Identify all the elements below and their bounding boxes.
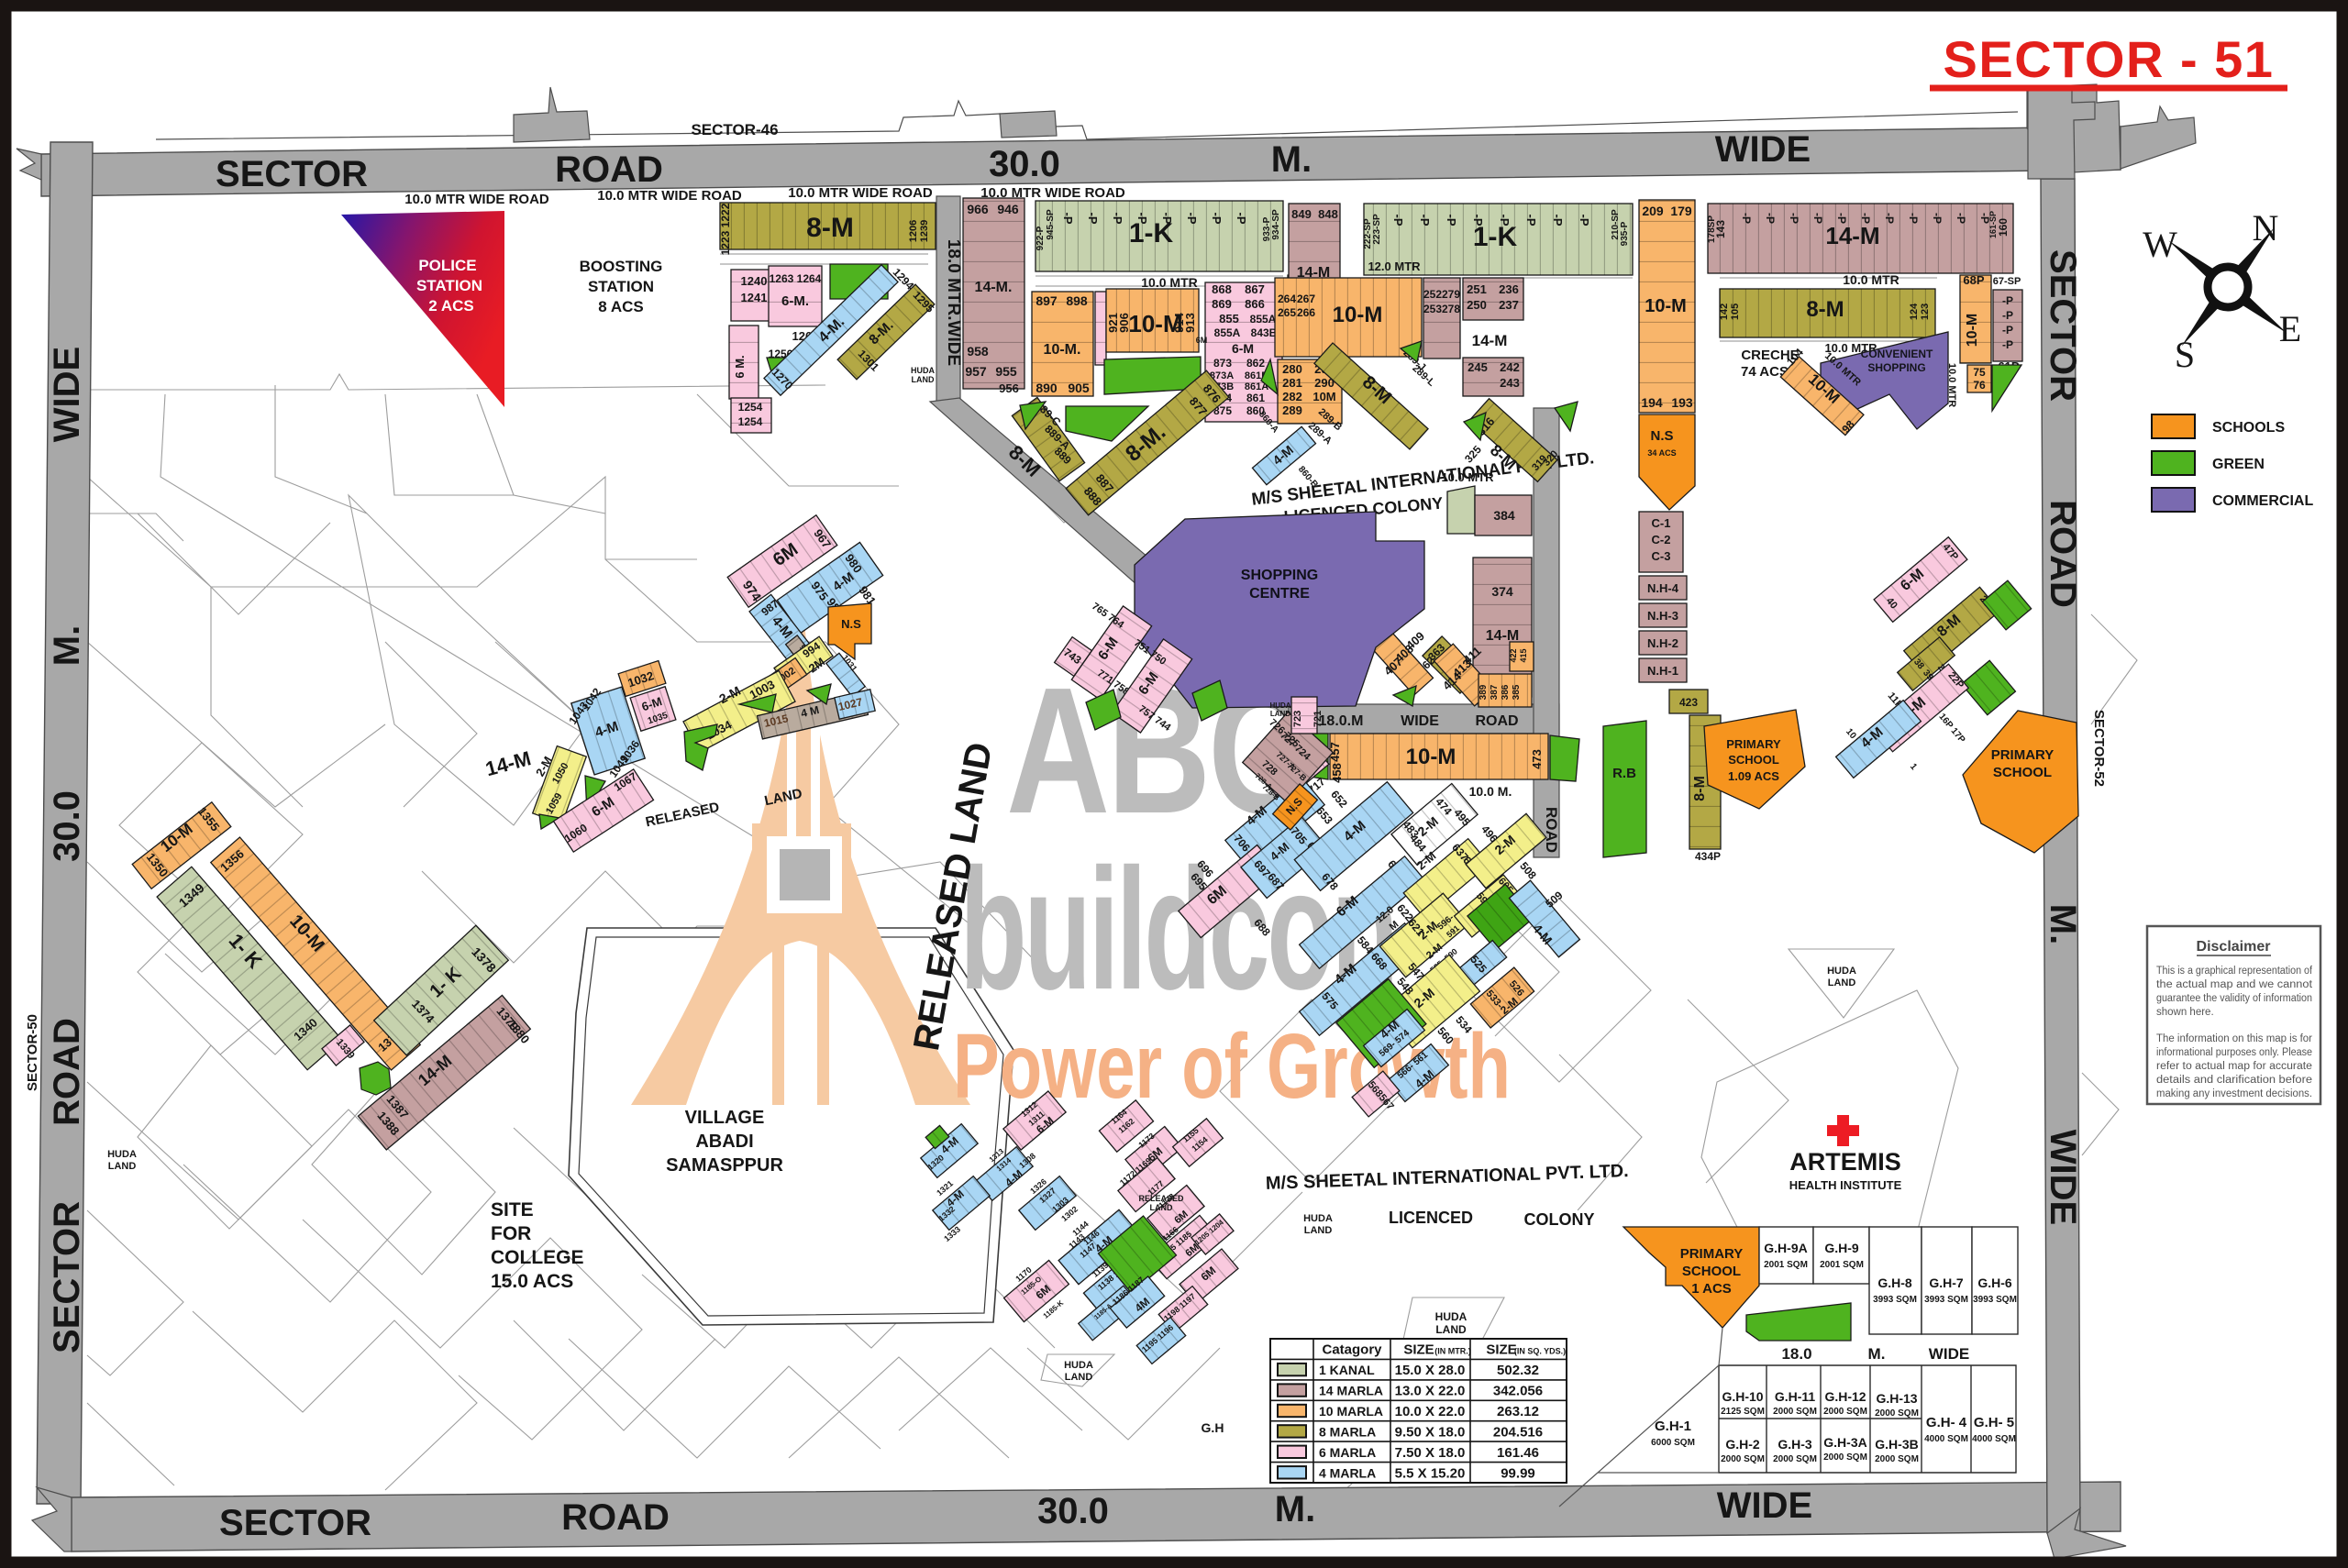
svg-text:1 ACS: 1 ACS bbox=[1691, 1281, 1732, 1297]
svg-text:N.H-1: N.H-1 bbox=[1647, 664, 1678, 678]
svg-text:HUDA: HUDA bbox=[107, 1149, 137, 1160]
svg-text:105: 105 bbox=[1730, 304, 1741, 320]
svg-text:C-1: C-1 bbox=[1652, 516, 1671, 530]
svg-text:242: 242 bbox=[1500, 360, 1520, 374]
svg-text:FOR: FOR bbox=[491, 1223, 531, 1244]
svg-text:99.99: 99.99 bbox=[1501, 1465, 1535, 1481]
svg-text:143: 143 bbox=[1714, 220, 1727, 238]
svg-text:30.0: 30.0 bbox=[989, 144, 1060, 184]
svg-text:M.: M. bbox=[1275, 1489, 1315, 1529]
svg-text:the actual map and we can: the actual map and we cannot bbox=[2156, 979, 2313, 990]
svg-text:6M: 6M bbox=[1196, 336, 1208, 345]
svg-text:342.056: 342.056 bbox=[1493, 1384, 1543, 1399]
svg-text:14-M: 14-M bbox=[1825, 222, 1879, 249]
svg-text:922-P: 922-P bbox=[1036, 226, 1046, 250]
svg-text:2000 SQM: 2000 SQM bbox=[1823, 1407, 1867, 1417]
svg-text:G.H-3A: G.H-3A bbox=[1823, 1435, 1866, 1450]
svg-text:1241: 1241 bbox=[741, 291, 768, 304]
svg-text:855: 855 bbox=[1219, 312, 1239, 326]
svg-text:6 M.: 6 M. bbox=[733, 355, 747, 378]
svg-text:SECTOR: SECTOR bbox=[219, 1503, 371, 1543]
svg-text:HUDA: HUDA bbox=[1827, 966, 1856, 977]
svg-text:G.H-3: G.H-3 bbox=[1778, 1437, 1812, 1452]
svg-text:76: 76 bbox=[1973, 379, 1986, 392]
svg-text:-P: -P bbox=[1811, 213, 1824, 224]
svg-text:-P: -P bbox=[1445, 215, 1458, 226]
svg-text:ROAD: ROAD bbox=[47, 1018, 87, 1126]
svg-text:-P: -P bbox=[1883, 213, 1896, 224]
svg-text:(IN SQ. YDS.): (IN SQ. YDS.) bbox=[1514, 1347, 1566, 1356]
svg-text:SAMASPPUR: SAMASPPUR bbox=[666, 1155, 783, 1176]
svg-text:278: 278 bbox=[1442, 303, 1460, 315]
svg-text:-P: -P bbox=[2002, 294, 2013, 307]
svg-text:243: 243 bbox=[1500, 376, 1520, 390]
svg-text:935-P: 935-P bbox=[1620, 221, 1630, 246]
svg-text:-P: -P bbox=[1418, 215, 1432, 226]
svg-text:-P: -P bbox=[1086, 213, 1100, 225]
svg-text:2125 SQM: 2125 SQM bbox=[1721, 1407, 1765, 1417]
svg-text:958: 958 bbox=[967, 344, 989, 359]
svg-text:CONVENIENT: CONVENIENT bbox=[1861, 348, 1933, 360]
svg-text:WIDE: WIDE bbox=[1717, 1485, 1812, 1526]
svg-text:10-M: 10-M bbox=[1406, 745, 1456, 769]
svg-text:N.S: N.S bbox=[841, 617, 861, 631]
svg-text:6000 SQM: 6000 SQM bbox=[1651, 1438, 1695, 1448]
svg-text:G.H-9: G.H-9 bbox=[1824, 1241, 1859, 1255]
svg-text:193: 193 bbox=[1671, 395, 1693, 410]
svg-text:SCHOOLS: SCHOOLS bbox=[2212, 420, 2285, 436]
svg-text:G.H-3B: G.H-3B bbox=[1875, 1437, 1918, 1452]
svg-text:LAND: LAND bbox=[1270, 710, 1290, 718]
svg-text:1.09 ACS: 1.09 ACS bbox=[1728, 769, 1779, 783]
svg-text:PRIMARY: PRIMARY bbox=[1991, 747, 2054, 763]
svg-text:WIDE: WIDE bbox=[2043, 1130, 2083, 1225]
svg-text:946: 946 bbox=[997, 202, 1019, 216]
svg-text:Disclaimer: Disclaimer bbox=[2197, 939, 2271, 955]
svg-text:COLLEGE: COLLEGE bbox=[491, 1247, 584, 1268]
svg-text:G.H-13: G.H-13 bbox=[1876, 1391, 1917, 1406]
svg-text:M.: M. bbox=[47, 625, 87, 666]
svg-text:67-SP: 67-SP bbox=[1993, 276, 2021, 287]
svg-text:502.32: 502.32 bbox=[1497, 1363, 1539, 1378]
svg-text:M.: M. bbox=[1868, 1345, 1886, 1363]
svg-text:SECTOR-50: SECTOR-50 bbox=[25, 1014, 40, 1091]
svg-text:30.0: 30.0 bbox=[1037, 1491, 1109, 1531]
svg-text:-P: -P bbox=[1135, 213, 1149, 225]
svg-text:374: 374 bbox=[1491, 584, 1513, 599]
svg-text:ARTEMIS: ARTEMIS bbox=[1789, 1148, 1901, 1176]
svg-text:-P: -P bbox=[1061, 213, 1075, 225]
svg-text:HUDA: HUDA bbox=[1435, 1310, 1467, 1323]
svg-text:245: 245 bbox=[1467, 360, 1488, 374]
svg-text:LAND: LAND bbox=[1150, 1203, 1173, 1212]
svg-text:informational purposes only. P: informational purposes only. Please bbox=[2156, 1047, 2312, 1058]
svg-text:-P: -P bbox=[1524, 215, 1538, 226]
svg-text:-P: -P bbox=[2002, 338, 2013, 351]
svg-text:124: 124 bbox=[1909, 303, 1920, 320]
svg-text:LAND: LAND bbox=[1304, 1225, 1333, 1236]
svg-text:862: 862 bbox=[1246, 357, 1265, 370]
svg-text:STATION: STATION bbox=[588, 278, 654, 295]
svg-text:BOOSTING: BOOSTING bbox=[580, 258, 663, 275]
svg-text:14-M.: 14-M. bbox=[975, 280, 1013, 295]
svg-text:5.5 X 15.20: 5.5 X 15.20 bbox=[1395, 1465, 1466, 1481]
svg-text:G.H: G.H bbox=[1202, 1420, 1224, 1435]
svg-text:204.516: 204.516 bbox=[1493, 1424, 1543, 1440]
svg-text:N.H-4: N.H-4 bbox=[1647, 581, 1679, 595]
svg-text:849: 849 bbox=[1291, 207, 1312, 221]
svg-text:251: 251 bbox=[1467, 282, 1487, 296]
svg-text:1263 1264: 1263 1264 bbox=[770, 272, 822, 285]
svg-text:G.H-6: G.H-6 bbox=[1977, 1275, 2012, 1290]
svg-text:SECTOR-52: SECTOR-52 bbox=[2091, 710, 2107, 787]
svg-text:1240: 1240 bbox=[741, 274, 768, 288]
svg-text:LAND: LAND bbox=[1435, 1323, 1467, 1336]
svg-text:SECTOR: SECTOR bbox=[216, 154, 368, 194]
svg-text:HUDA: HUDA bbox=[1303, 1213, 1333, 1224]
svg-text:10.0 M.: 10.0 M. bbox=[1469, 784, 1512, 799]
svg-text:2000 SQM: 2000 SQM bbox=[1875, 1408, 1919, 1419]
svg-text:2001 SQM: 2001 SQM bbox=[1820, 1260, 1864, 1270]
svg-text:ROAD: ROAD bbox=[1475, 713, 1518, 729]
svg-text:HUDA: HUDA bbox=[1064, 1360, 1093, 1371]
svg-text:The information on this map is: The information on this map is for bbox=[2156, 1033, 2312, 1044]
svg-text:POLICE: POLICE bbox=[418, 257, 476, 274]
svg-text:3993 SQM: 3993 SQM bbox=[1873, 1295, 1917, 1305]
svg-text:SCHOOL: SCHOOL bbox=[1993, 765, 2052, 780]
svg-text:-P: -P bbox=[1764, 213, 1777, 224]
svg-text:-P: -P bbox=[1185, 213, 1199, 225]
svg-text:2001 SQM: 2001 SQM bbox=[1764, 1260, 1808, 1270]
svg-text:142: 142 bbox=[1719, 304, 1730, 320]
svg-text:1 KANAL: 1 KANAL bbox=[1319, 1363, 1375, 1377]
svg-text:1254: 1254 bbox=[738, 415, 763, 428]
svg-text:2000 SQM: 2000 SQM bbox=[1823, 1452, 1867, 1463]
svg-text:guarantee the validity of info: guarantee the validity of information bbox=[2156, 993, 2312, 1004]
svg-text:8-M: 8-M bbox=[1692, 776, 1708, 801]
svg-text:-P: -P bbox=[1931, 213, 1944, 224]
svg-text:N.H-2: N.H-2 bbox=[1647, 636, 1678, 650]
svg-text:E: E bbox=[2279, 308, 2301, 349]
svg-text:N.S: N.S bbox=[1650, 428, 1673, 444]
svg-text:-P: -P bbox=[1578, 215, 1591, 226]
svg-text:265: 265 bbox=[1278, 306, 1296, 319]
svg-text:389: 389 bbox=[1479, 684, 1489, 700]
svg-text:723: 723 bbox=[1292, 711, 1303, 727]
svg-text:869: 869 bbox=[1212, 297, 1232, 311]
svg-text:2000 SQM: 2000 SQM bbox=[1875, 1454, 1919, 1464]
svg-text:2000 SQM: 2000 SQM bbox=[1721, 1454, 1765, 1464]
svg-text:10-M: 10-M bbox=[1333, 303, 1383, 327]
svg-text:ROAD: ROAD bbox=[1543, 807, 1560, 853]
svg-text:34 ACS: 34 ACS bbox=[1647, 448, 1676, 458]
svg-text:SECTOR: SECTOR bbox=[2043, 249, 2083, 402]
svg-text:LAND: LAND bbox=[1828, 977, 1856, 988]
svg-text:3993 SQM: 3993 SQM bbox=[1924, 1295, 1968, 1305]
svg-text:10-M: 10-M bbox=[1965, 314, 1980, 347]
svg-text:-P: -P bbox=[1835, 213, 1848, 224]
svg-text:SECTOR - 51: SECTOR - 51 bbox=[1944, 30, 2275, 88]
svg-text:855A: 855A bbox=[1214, 326, 1241, 339]
svg-text:868: 868 bbox=[1212, 282, 1232, 296]
svg-text:10.0 MTR WIDE ROAD: 10.0 MTR WIDE ROAD bbox=[404, 192, 549, 207]
svg-text:18.0: 18.0 bbox=[1781, 1345, 1811, 1363]
svg-text:252: 252 bbox=[1423, 288, 1442, 301]
svg-text:-P: -P bbox=[1551, 215, 1565, 226]
svg-text:237: 237 bbox=[1499, 298, 1519, 312]
svg-text:G.H-7: G.H-7 bbox=[1929, 1275, 1964, 1290]
svg-text:SECTOR-46: SECTOR-46 bbox=[691, 121, 778, 138]
svg-text:873: 873 bbox=[1213, 357, 1232, 370]
svg-text:385: 385 bbox=[1512, 684, 1522, 700]
svg-text:details and clarification b: details and clarification before bbox=[2156, 1075, 2312, 1086]
svg-text:194: 194 bbox=[1641, 395, 1663, 410]
svg-text:10.0 MTR: 10.0 MTR bbox=[1946, 363, 1957, 407]
svg-text:282: 282 bbox=[1282, 390, 1302, 403]
svg-text:13.0 X 22.0: 13.0 X 22.0 bbox=[1395, 1384, 1466, 1399]
svg-text:VILLAGE: VILLAGE bbox=[685, 1108, 765, 1128]
svg-text:8 ACS: 8 ACS bbox=[598, 298, 643, 315]
svg-text:-P: -P bbox=[1235, 213, 1248, 225]
svg-text:281: 281 bbox=[1282, 376, 1302, 390]
svg-text:6 MARLA: 6 MARLA bbox=[1319, 1445, 1376, 1460]
svg-text:PRIMARY: PRIMARY bbox=[1680, 1246, 1744, 1262]
svg-text:209: 209 bbox=[1642, 204, 1664, 218]
svg-text:M.: M. bbox=[1271, 139, 1312, 180]
svg-text:WIDE: WIDE bbox=[1715, 129, 1811, 170]
svg-text:68P: 68P bbox=[1963, 273, 1984, 287]
svg-text:G.H- 4: G.H- 4 bbox=[1926, 1415, 1967, 1430]
svg-text:18.0 MTR.WIDE: 18.0 MTR.WIDE bbox=[944, 239, 963, 366]
svg-text:75: 75 bbox=[1973, 366, 1986, 379]
svg-text:SHOPPING: SHOPPING bbox=[1867, 361, 1925, 374]
svg-text:848: 848 bbox=[1318, 207, 1338, 221]
svg-text:STATION: STATION bbox=[416, 277, 482, 294]
svg-text:434P: 434P bbox=[1695, 850, 1721, 863]
svg-text:1239: 1239 bbox=[919, 220, 930, 242]
svg-text:223-SP: 223-SP bbox=[1372, 214, 1382, 245]
svg-text:890: 890 bbox=[1036, 381, 1058, 395]
svg-text:SITE: SITE bbox=[491, 1199, 534, 1220]
svg-text:-P: -P bbox=[1907, 213, 1920, 224]
svg-text:This is a graphical representa: This is a graphical representation of bbox=[2156, 966, 2313, 977]
svg-text:N.H-3: N.H-3 bbox=[1647, 609, 1678, 623]
svg-text:HUDA: HUDA bbox=[911, 366, 935, 375]
svg-text:1254: 1254 bbox=[738, 401, 763, 414]
svg-text:LAND: LAND bbox=[108, 1161, 137, 1172]
svg-text:905: 905 bbox=[1068, 381, 1090, 395]
svg-text:-P: -P bbox=[1859, 213, 1872, 224]
svg-text:GREEN: GREEN bbox=[2212, 457, 2265, 472]
svg-text:415: 415 bbox=[1519, 648, 1528, 662]
svg-text:-P: -P bbox=[1788, 213, 1800, 224]
svg-text:G.H-12: G.H-12 bbox=[1824, 1389, 1866, 1404]
svg-text:10 MARLA: 10 MARLA bbox=[1319, 1404, 1383, 1419]
svg-text:LICENCED: LICENCED bbox=[1389, 1209, 1473, 1227]
svg-text:10.0 MTR WIDE ROAD: 10.0 MTR WIDE ROAD bbox=[597, 188, 742, 204]
svg-text:1223 1222: 1223 1222 bbox=[719, 203, 732, 255]
svg-text:N: N bbox=[2253, 207, 2279, 248]
svg-text:4000 SQM: 4000 SQM bbox=[1972, 1434, 2016, 1444]
svg-text:458: 458 bbox=[1330, 763, 1344, 783]
svg-text:2 ACS: 2 ACS bbox=[428, 297, 473, 315]
svg-text:866: 866 bbox=[1245, 297, 1265, 311]
svg-text:721: 721 bbox=[1312, 711, 1324, 727]
svg-text:-P: -P bbox=[2002, 324, 2013, 337]
svg-text:HEALTH INSTITUTE: HEALTH INSTITUTE bbox=[1789, 1178, 1902, 1192]
svg-text:SCHOOL: SCHOOL bbox=[1682, 1264, 1741, 1279]
svg-text:4000 SQM: 4000 SQM bbox=[1924, 1434, 1968, 1444]
svg-text:1206: 1206 bbox=[908, 220, 919, 242]
svg-text:253: 253 bbox=[1423, 303, 1442, 315]
svg-text:386: 386 bbox=[1501, 684, 1511, 700]
svg-text:161.46: 161.46 bbox=[1497, 1445, 1539, 1461]
svg-text:C-2: C-2 bbox=[1652, 533, 1671, 547]
svg-text:955: 955 bbox=[995, 364, 1017, 379]
svg-text:1-K: 1-K bbox=[1473, 222, 1518, 252]
svg-text:COLONY: COLONY bbox=[1523, 1210, 1594, 1229]
svg-text:LAND: LAND bbox=[912, 375, 935, 384]
svg-text:15.0 X 28.0: 15.0 X 28.0 bbox=[1395, 1363, 1466, 1378]
svg-text:10.0 MTR: 10.0 MTR bbox=[1843, 272, 1899, 287]
svg-text:160: 160 bbox=[1997, 218, 2010, 237]
svg-text:W: W bbox=[2143, 224, 2177, 265]
svg-text:3993 SQM: 3993 SQM bbox=[1973, 1295, 2017, 1305]
svg-text:-P: -P bbox=[1391, 215, 1405, 226]
svg-text:15.0 ACS: 15.0 ACS bbox=[491, 1271, 573, 1292]
svg-text:-P: -P bbox=[1740, 213, 1753, 224]
svg-text:LAND: LAND bbox=[1065, 1372, 1093, 1383]
svg-text:7.50 X 18.0: 7.50 X 18.0 bbox=[1395, 1445, 1466, 1461]
svg-text:267: 267 bbox=[1297, 293, 1315, 305]
svg-text:S: S bbox=[2175, 334, 2195, 375]
svg-text:SECTOR: SECTOR bbox=[47, 1201, 87, 1353]
svg-text:refer to actual map for a: refer to actual map for accurate bbox=[2156, 1061, 2312, 1072]
svg-text:G.H-1: G.H-1 bbox=[1655, 1419, 1691, 1434]
svg-text:8-M: 8-M bbox=[1806, 297, 1844, 322]
svg-text:SIZE: SIZE bbox=[1403, 1342, 1434, 1358]
svg-text:14-M: 14-M bbox=[1472, 332, 1508, 349]
svg-text:Catagory: Catagory bbox=[1322, 1342, 1382, 1358]
svg-text:913: 913 bbox=[1183, 313, 1197, 333]
svg-text:855A: 855A bbox=[1250, 313, 1277, 326]
svg-text:RELEASED: RELEASED bbox=[1138, 1194, 1184, 1203]
svg-text:179: 179 bbox=[1670, 204, 1692, 218]
svg-text:14 MARLA: 14 MARLA bbox=[1319, 1384, 1383, 1398]
svg-text:CENTRE: CENTRE bbox=[1249, 586, 1310, 602]
svg-text:G.H-2: G.H-2 bbox=[1725, 1437, 1760, 1452]
svg-text:897: 897 bbox=[1036, 293, 1058, 308]
svg-text:123: 123 bbox=[1920, 304, 1931, 320]
svg-text:250: 250 bbox=[1467, 298, 1487, 312]
svg-text:G.H-8: G.H-8 bbox=[1877, 1275, 1912, 1290]
svg-text:473: 473 bbox=[1530, 749, 1544, 769]
svg-text:30.0: 30.0 bbox=[47, 790, 87, 862]
svg-text:280: 280 bbox=[1282, 362, 1302, 376]
svg-text:R.B: R.B bbox=[1612, 766, 1636, 781]
svg-text:10.0 X 22.0: 10.0 X 22.0 bbox=[1395, 1404, 1466, 1419]
svg-text:861: 861 bbox=[1246, 392, 1265, 404]
svg-text:-P: -P bbox=[2002, 309, 2013, 322]
svg-text:ABADI: ABADI bbox=[695, 1132, 753, 1152]
svg-text:ROAD: ROAD bbox=[561, 1497, 670, 1538]
svg-text:966: 966 bbox=[967, 202, 989, 216]
svg-text:6-M: 6-M bbox=[1232, 341, 1254, 356]
svg-text:WIDE: WIDE bbox=[1929, 1345, 1969, 1363]
svg-text:423: 423 bbox=[1679, 696, 1698, 709]
svg-text:SIZE: SIZE bbox=[1486, 1342, 1516, 1358]
svg-text:2000 SQM: 2000 SQM bbox=[1773, 1454, 1817, 1464]
svg-text:9.50 X 18.0: 9.50 X 18.0 bbox=[1395, 1424, 1466, 1440]
svg-text:10M: 10M bbox=[1312, 390, 1335, 403]
svg-text:264: 264 bbox=[1278, 293, 1296, 305]
svg-text:WIDE: WIDE bbox=[47, 347, 87, 442]
svg-text:843B: 843B bbox=[1251, 326, 1278, 339]
svg-text:384: 384 bbox=[1493, 508, 1515, 523]
svg-text:934-SP: 934-SP bbox=[1271, 209, 1281, 240]
svg-text:6-M.: 6-M. bbox=[781, 293, 809, 309]
svg-text:10.0 MTR: 10.0 MTR bbox=[1141, 275, 1197, 290]
svg-text:10-M: 10-M bbox=[1645, 296, 1687, 316]
svg-text:898: 898 bbox=[1066, 293, 1088, 308]
svg-text:945-SP: 945-SP bbox=[1046, 209, 1056, 240]
svg-text:12.0 MTR: 12.0 MTR bbox=[1368, 259, 1421, 273]
svg-text:G.H-11: G.H-11 bbox=[1775, 1389, 1816, 1404]
svg-text:956: 956 bbox=[999, 381, 1019, 395]
svg-text:-P: -P bbox=[1160, 213, 1174, 225]
svg-text:PRIMARY: PRIMARY bbox=[1726, 737, 1781, 751]
svg-text:making any investment decision: making any investment decisions. bbox=[2156, 1088, 2312, 1099]
svg-text:387: 387 bbox=[1490, 684, 1500, 700]
svg-text:957: 957 bbox=[965, 364, 987, 379]
svg-text:8-M: 8-M bbox=[806, 213, 854, 243]
svg-text:-P: -P bbox=[1471, 215, 1485, 226]
svg-text:(IN MTR.): (IN MTR.) bbox=[1434, 1347, 1471, 1356]
svg-text:-P: -P bbox=[1955, 213, 1967, 224]
svg-text:4 MARLA: 4 MARLA bbox=[1319, 1465, 1376, 1480]
svg-text:236: 236 bbox=[1499, 282, 1519, 296]
svg-text:SCHOOL: SCHOOL bbox=[1728, 753, 1779, 767]
svg-text:COMMERCIAL: COMMERCIAL bbox=[2212, 493, 2313, 509]
svg-text:SHOPPING: SHOPPING bbox=[1241, 568, 1318, 583]
svg-text:263.12: 263.12 bbox=[1497, 1404, 1539, 1419]
svg-text:422: 422 bbox=[1509, 648, 1518, 662]
svg-text:10.0 MTR WIDE ROAD: 10.0 MTR WIDE ROAD bbox=[788, 185, 933, 201]
svg-text:WIDE: WIDE bbox=[1401, 713, 1439, 729]
svg-text:-P: -P bbox=[1498, 215, 1512, 226]
svg-text:10.0 MTR: 10.0 MTR bbox=[1441, 470, 1494, 484]
svg-text:279: 279 bbox=[1442, 288, 1460, 301]
svg-text:-P: -P bbox=[1111, 213, 1124, 225]
svg-text:ROAD: ROAD bbox=[2043, 500, 2083, 608]
svg-text:M.: M. bbox=[2043, 904, 2083, 944]
svg-text:HUDA: HUDA bbox=[1269, 701, 1290, 710]
svg-text:G.H-9A: G.H-9A bbox=[1764, 1241, 1807, 1255]
svg-text:ROAD: ROAD bbox=[555, 149, 663, 190]
svg-text:18.0.M: 18.0.M bbox=[1319, 713, 1364, 729]
svg-text:266: 266 bbox=[1297, 306, 1315, 319]
svg-text:shown here.: shown here. bbox=[2156, 1007, 2214, 1018]
svg-text:10-M.: 10-M. bbox=[1044, 342, 1081, 358]
svg-text:8 MARLA: 8 MARLA bbox=[1319, 1424, 1376, 1439]
svg-text:G.H-10: G.H-10 bbox=[1722, 1389, 1763, 1404]
svg-text:289: 289 bbox=[1282, 403, 1302, 417]
svg-text:867: 867 bbox=[1245, 282, 1265, 296]
svg-text:C-3: C-3 bbox=[1652, 549, 1671, 563]
svg-text:G.H- 5: G.H- 5 bbox=[1974, 1415, 2014, 1430]
svg-text:-P: -P bbox=[1210, 213, 1224, 225]
svg-text:2000 SQM: 2000 SQM bbox=[1773, 1407, 1817, 1417]
